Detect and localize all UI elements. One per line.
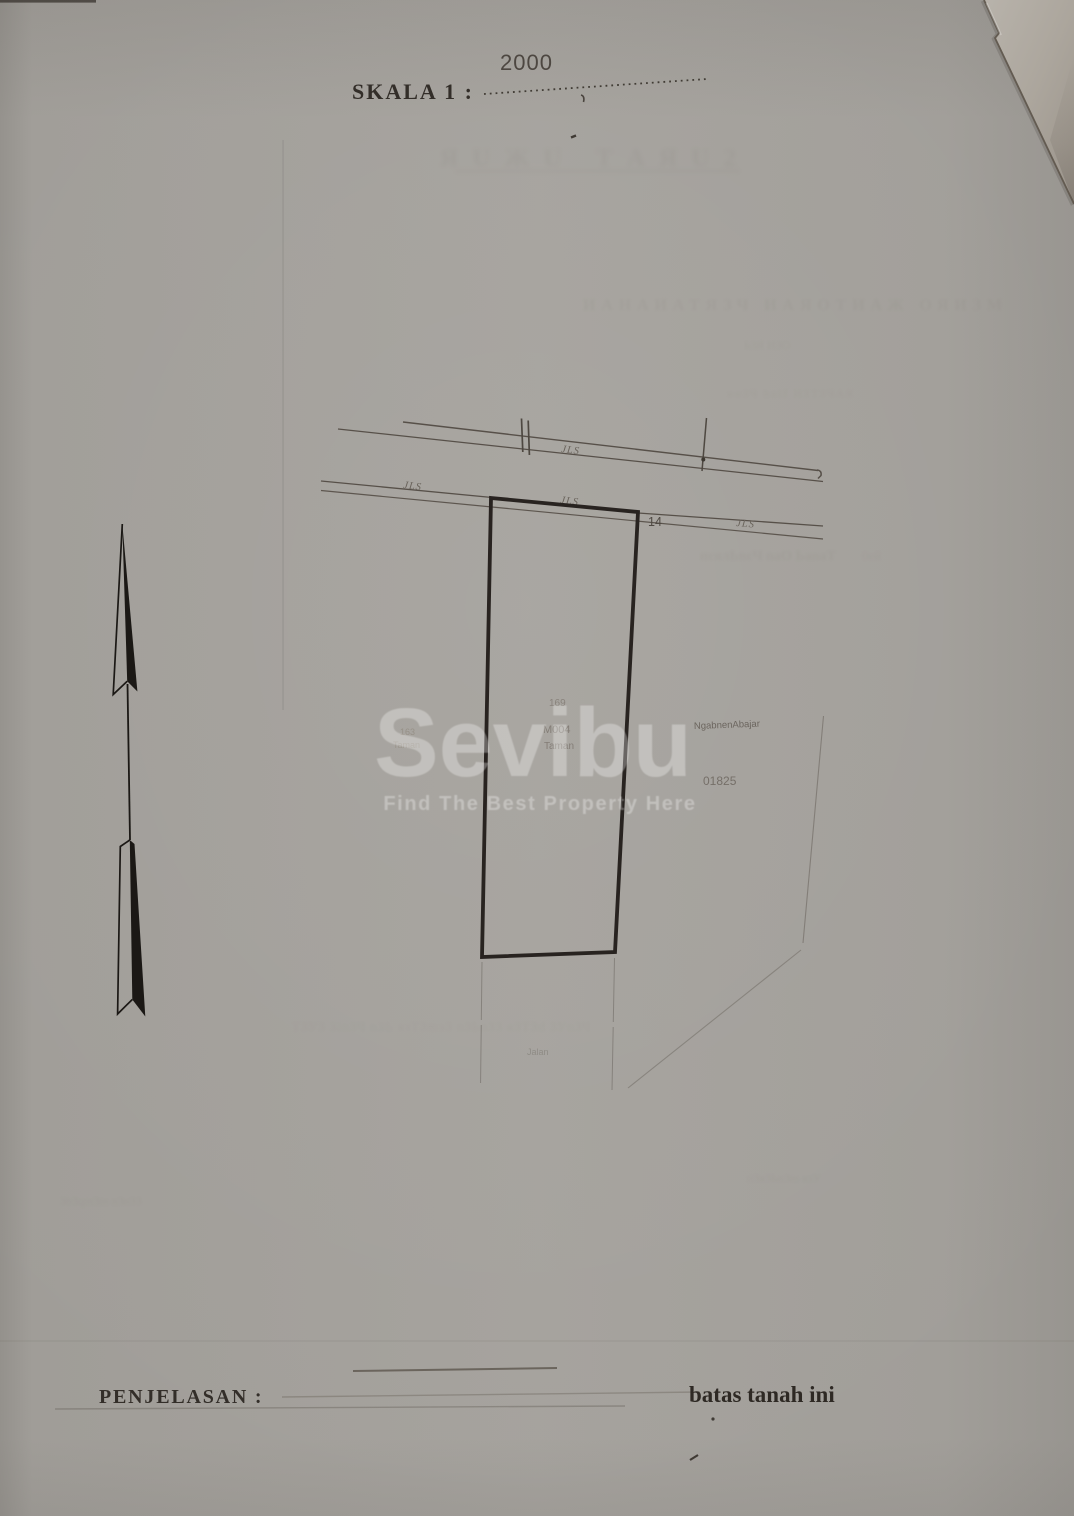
- svg-text:2000: 2000: [500, 50, 553, 75]
- svg-text:JLS: JLS: [403, 480, 423, 493]
- svg-text:ЗbЗqmЗm nЗnЗЗ: ЗbЗqmЗm nЗnЗЗ: [60, 1194, 142, 1208]
- svg-text:пЗяЗЬnЗm язУ: пЗяЗЬnЗm язУ: [747, 1171, 821, 1185]
- svg-text:ЯUЖU ТAЯU2: ЯUЖU ТAЯU2: [440, 145, 740, 172]
- svg-text:JLS: JLS: [736, 518, 756, 531]
- svg-text:ТЗУЗ ЗinЗЧ nЗЬ язТЗmэЗ nЗЬnЗЗ: ТЗУЗ ЗinЗЧ nЗЬ язТЗmэЗ nЗЬnЗЗ яЗТЗd ЗУnЗ…: [292, 1019, 591, 1034]
- svg-text:Jalan: Jalan: [527, 1047, 549, 1057]
- svg-text:пεялЬnεЧ nаО ЬanаТ: пεялЬnεЧ nаО ЬanаТ: [700, 549, 836, 564]
- svg-text:ИAНAИATЯЗЧ ИАЯОТИАЖ ОЯИЗМ: ИAНAИATЯЗЧ ИАЯОТИАЖ ОЯИЗМ: [583, 297, 1003, 314]
- svg-text:0ей: 0ей: [862, 548, 881, 563]
- svg-text:NgabnenAbajar: NgabnenAbajar: [694, 719, 760, 732]
- svg-text:ЬЗЯ ИЗО: ЬЗЯ ИЗО: [744, 338, 791, 352]
- svg-text:SKALA 1 :: SKALA 1 :: [352, 79, 474, 104]
- svg-text:JLS: JLS: [561, 444, 581, 457]
- svg-text:01825: 01825: [703, 774, 737, 788]
- svg-text:batas tanah ini: batas tanah ini: [689, 1382, 835, 1407]
- svg-text:14: 14: [648, 515, 662, 529]
- svg-text:ииЗЧ half ИЗТЗЧАЯ: ииЗЧ half ИЗТЗЧАЯ: [727, 388, 855, 400]
- svg-text:Sevibu: Sevibu: [374, 688, 692, 797]
- svg-text:PENJELASAN :: PENJELASAN :: [99, 1386, 263, 1408]
- svg-text:Find The Best Property Here: Find The Best Property Here: [383, 793, 696, 815]
